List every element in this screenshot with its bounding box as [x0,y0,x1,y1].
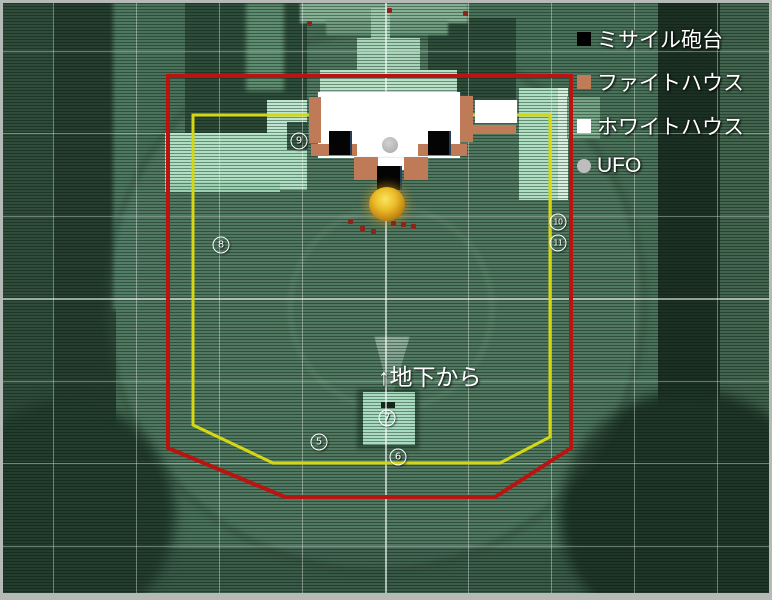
enemy-dot [387,8,392,13]
fight-house [473,125,516,134]
map-marker-11: 11 [550,235,567,252]
white-house [475,100,517,123]
missile-turret [329,131,352,155]
map-marker-10: 10 [550,214,567,231]
enemy-dot [411,224,416,229]
enemy-dot [391,221,396,226]
map-marker-7: 7 [379,410,396,427]
enemy-dot [401,222,406,227]
legend-item-fight-house: ファイトハウス [577,67,744,97]
fight-house [354,157,378,180]
fight-house-swatch-icon [577,75,591,89]
map-marker-8: 8 [213,237,230,254]
tactical-map-screenshot: 567891011 ↑地下から ミサイル砲台 ファイトハウス ホワイトハウス U… [0,0,772,600]
map-marker-6: 6 [390,449,407,466]
gold-sphere [369,187,405,221]
fight-house [309,97,321,143]
ufo-swatch-icon [577,159,591,173]
underground-arrow-label: ↑地下から [378,358,482,392]
missile-battery-swatch-icon [577,32,591,46]
missile-turret [428,131,451,155]
ufo-marker [382,137,398,153]
enemy-dot [463,11,468,16]
fight-house [460,96,473,142]
map-marker-9: 9 [291,133,308,150]
enemy-dot [371,229,376,234]
enemy-dot [348,219,353,224]
legend-item-white-house: ホワイトハウス [577,111,744,141]
legend-item-missile-battery: ミサイル砲台 [577,24,723,54]
legend-label: ホワイトハウス [597,111,744,141]
enemy-dot [307,21,312,26]
fight-house [404,157,428,180]
legend-label: ミサイル砲台 [597,24,723,54]
legend-label: UFO [597,154,641,178]
legend-item-ufo: UFO [577,154,641,178]
white-house-swatch-icon [577,119,591,133]
map-marker-5: 5 [311,434,328,451]
enemy-dot [360,226,365,231]
legend-label: ファイトハウス [597,67,744,97]
